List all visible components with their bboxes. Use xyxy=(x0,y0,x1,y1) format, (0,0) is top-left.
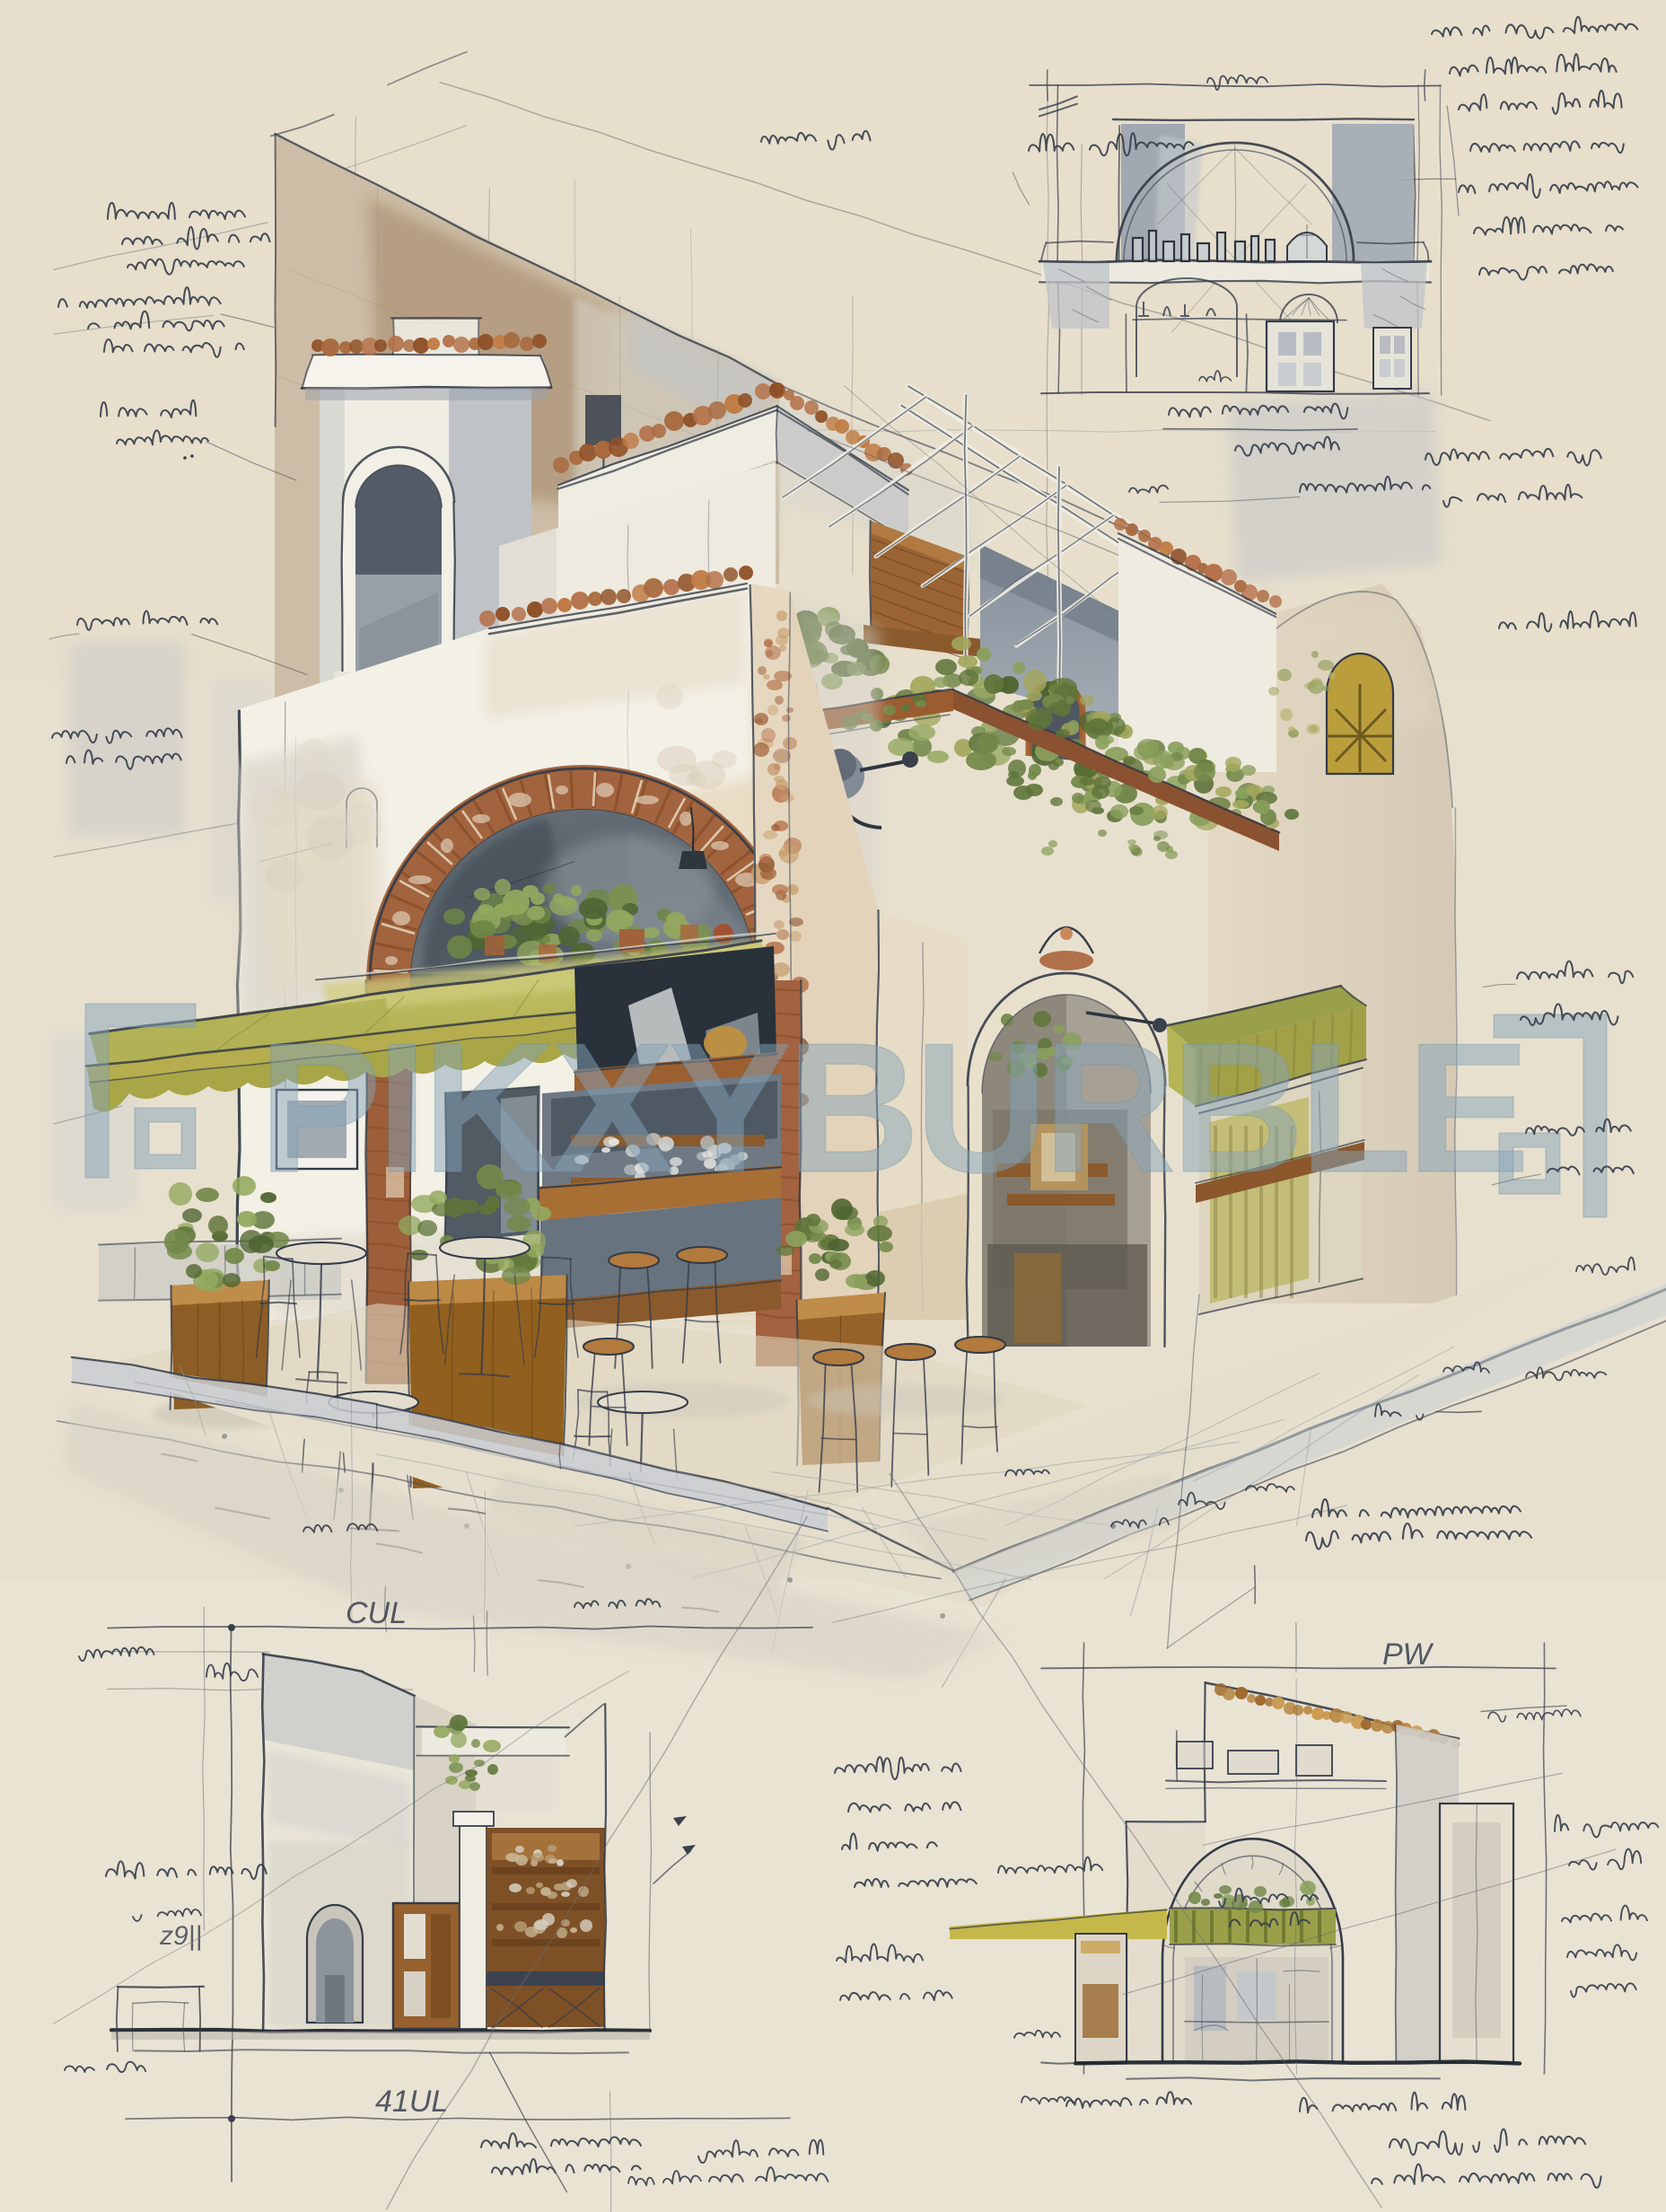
svg-text:CUL: CUL xyxy=(346,1596,407,1630)
svg-text:z9||: z9|| xyxy=(159,1921,202,1951)
svg-text:PIKXYBURBLE: PIKXYBURBLE xyxy=(259,1005,1525,1211)
svg-text:PW: PW xyxy=(1382,1637,1434,1672)
svg-text:41UL: 41UL xyxy=(375,2085,448,2119)
